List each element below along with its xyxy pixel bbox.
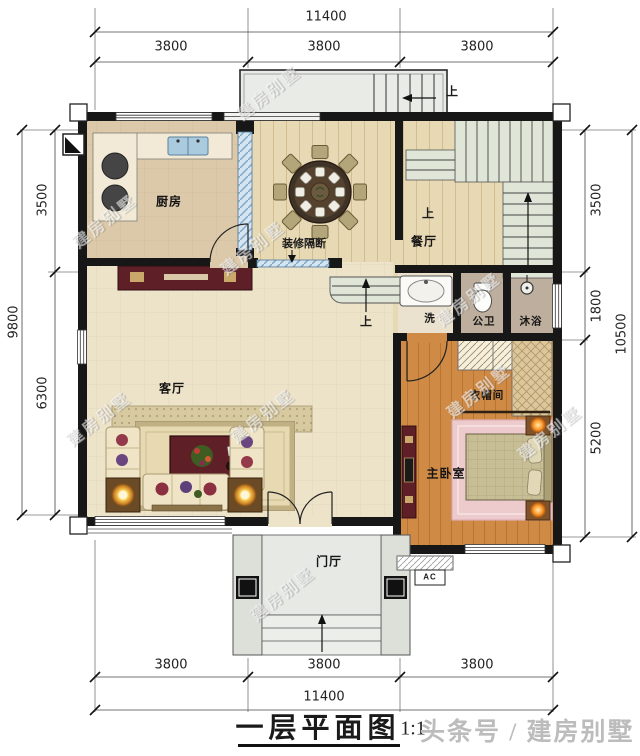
tv-cabinet-living (118, 266, 252, 290)
living-south-window (88, 517, 232, 534)
toilet (474, 283, 492, 312)
sofa-bottom (143, 474, 229, 511)
tv-cabinet-bedroom (402, 426, 416, 518)
lamp-table-right (228, 478, 262, 512)
watermark-caption: 头条号 / 建房别墅 (420, 712, 634, 748)
ac-unit-box (415, 570, 445, 585)
porch-column (236, 576, 259, 599)
porch-column (384, 576, 407, 599)
foyer-floor (262, 535, 381, 615)
wash-basin (400, 276, 452, 306)
axis-marker (63, 134, 84, 155)
shower-window (553, 284, 562, 328)
lamp-table-left (106, 478, 140, 512)
nightstand (526, 501, 550, 520)
plan-title: 一层平面图 (235, 706, 400, 746)
entry-steps (262, 614, 381, 655)
floor-plan-page: 11400 3800 3800 3800 3800 3800 3800 1140… (0, 0, 640, 756)
nightstand (526, 416, 550, 435)
west-window (78, 330, 87, 364)
floor-plan-canvas (0, 0, 640, 756)
balcony-door (224, 113, 320, 121)
stove-burner (102, 153, 128, 179)
shower-floor (511, 273, 554, 333)
kitchen-window (116, 113, 212, 121)
sofa-set (106, 406, 312, 512)
bed-group (452, 416, 552, 520)
stove-burner (102, 185, 128, 211)
title-underline (238, 744, 400, 747)
bedroom-south-window (465, 545, 545, 554)
